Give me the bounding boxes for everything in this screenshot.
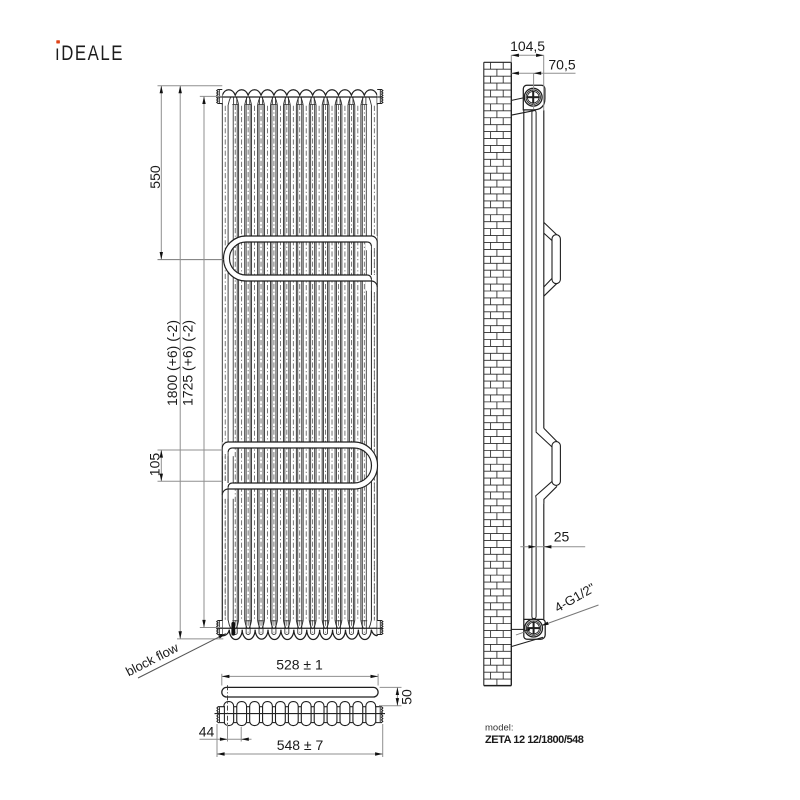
svg-text:105: 105 bbox=[147, 453, 163, 477]
svg-text:104,5: 104,5 bbox=[510, 38, 545, 54]
svg-text:25: 25 bbox=[554, 528, 570, 544]
svg-text:550: 550 bbox=[147, 165, 163, 189]
svg-text:548 ± 7: 548 ± 7 bbox=[277, 737, 324, 753]
svg-text:model:: model: bbox=[485, 723, 514, 734]
svg-text:70,5: 70,5 bbox=[548, 57, 575, 73]
svg-text:1725 (+6) (-2): 1725 (+6) (-2) bbox=[179, 320, 195, 406]
svg-text:50: 50 bbox=[398, 689, 414, 705]
svg-text:ıDEALE: ıDEALE bbox=[55, 42, 124, 65]
svg-text:ZETA 12 12/1800/548: ZETA 12 12/1800/548 bbox=[485, 734, 584, 746]
svg-text:44: 44 bbox=[199, 724, 215, 740]
svg-text:1800 (+6) (-2): 1800 (+6) (-2) bbox=[164, 320, 180, 406]
svg-text:528 ± 1: 528 ± 1 bbox=[276, 657, 323, 673]
